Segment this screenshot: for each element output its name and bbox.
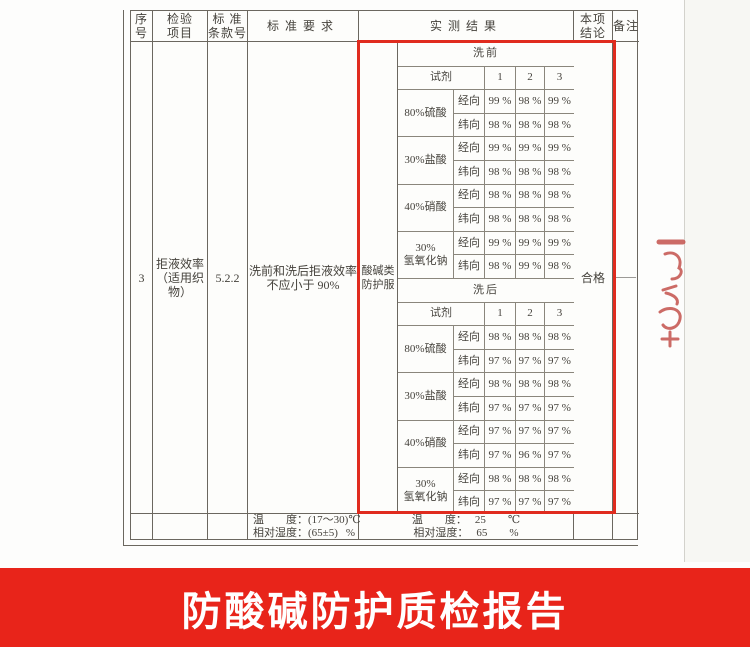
- direction-label: 经向: [453, 325, 484, 349]
- stamp-fragment-marks: [653, 238, 687, 350]
- requirement-line1: 洗前和洗后拒液效率: [249, 264, 357, 278]
- reagent-name: 30%盐酸: [398, 372, 453, 419]
- conclusion-value: 合格: [581, 271, 605, 285]
- col-header-clause-line1: 标 准: [212, 12, 242, 26]
- trial-number-header: 2: [515, 66, 544, 90]
- result-value: 99 %: [544, 231, 574, 255]
- result-value: 97 %: [544, 490, 574, 514]
- result-value: 97 %: [544, 420, 574, 444]
- col-header-remark: 备注: [613, 11, 639, 42]
- result-value: 98 %: [515, 372, 544, 396]
- trial-number-header: 3: [544, 66, 574, 90]
- col-header-item-line2: 项目: [167, 26, 193, 40]
- col-header-conclusion: 本项 结论: [574, 11, 613, 42]
- result-value: 97 %: [515, 420, 544, 444]
- reagent-name: 30%盐酸: [398, 136, 453, 183]
- col-header-seq: 序 号: [131, 11, 153, 42]
- result-value: 99 %: [484, 231, 515, 255]
- reagent-name: 40%硝酸: [398, 184, 453, 231]
- result-value: 98 %: [484, 467, 515, 491]
- result-value: 99 %: [484, 136, 515, 160]
- result-value: 97 %: [484, 443, 515, 467]
- result-value: 98 %: [544, 207, 574, 231]
- direction-label: 纬向: [453, 207, 484, 231]
- seq-value: 3: [139, 271, 145, 285]
- col-header-conclusion-line2: 结论: [580, 26, 606, 40]
- env-standard-temperature-value: (17～30)℃: [308, 514, 361, 526]
- result-value: 97 %: [515, 349, 544, 373]
- result-value: 97 %: [515, 396, 544, 420]
- result-value: 98 %: [544, 467, 574, 491]
- env-actual-cell: 温 度：25℃ 相对湿度：65%: [359, 514, 574, 540]
- col-header-seq-line1: 序: [135, 12, 148, 26]
- col-header-conclusion-line1: 本项: [580, 12, 606, 26]
- item-line2: （适用织物）: [153, 271, 207, 299]
- direction-label: 经向: [453, 136, 484, 160]
- trial-number-header: 2: [515, 302, 544, 326]
- remark-cell: ——: [613, 42, 639, 514]
- trial-number-header: 1: [484, 66, 515, 90]
- result-value: 97 %: [484, 420, 515, 444]
- env-actual-temperature-value: 25: [475, 514, 486, 527]
- col-header-result: 实测结果: [359, 11, 574, 42]
- reagent-column-header: 试剂: [398, 302, 484, 326]
- col-header-clause-line2: 条款号: [208, 26, 247, 40]
- reagent-name: 40%硝酸: [398, 420, 453, 467]
- direction-label: 纬向: [453, 349, 484, 373]
- env-empty-5: [613, 514, 639, 540]
- env-actual-humidity-value: 65: [476, 527, 487, 540]
- result-value: 97 %: [544, 443, 574, 467]
- result-value: 98 %: [515, 113, 544, 137]
- requirement-line2: 不应小于 90%: [267, 278, 340, 292]
- banner-title-text: 防酸碱防护质检报告: [182, 579, 569, 637]
- result-value: 99 %: [515, 254, 544, 278]
- direction-label: 经向: [453, 372, 484, 396]
- report-page: 序 号 检验 项目 标 准 条款号 标准要求 实测结果 本项 结论 备注 3 拒…: [0, 0, 750, 647]
- item-cell: 拒液效率 （适用织物）: [153, 42, 208, 514]
- reagent-name: 80%硫酸: [398, 325, 453, 372]
- direction-label: 纬向: [453, 490, 484, 514]
- result-value: 98 %: [544, 160, 574, 184]
- reagent-name: 80%硫酸: [398, 89, 453, 136]
- result-value: 98 %: [484, 113, 515, 137]
- item-line1: 拒液效率: [156, 257, 204, 271]
- result-value: 98 %: [544, 325, 574, 349]
- result-value: 98 %: [515, 467, 544, 491]
- remark-value: ——: [616, 271, 636, 285]
- result-value: 98 %: [515, 160, 544, 184]
- result-value: 98 %: [484, 254, 515, 278]
- result-value: 98 %: [515, 89, 544, 113]
- title-banner: 防酸碱防护质检报告: [0, 568, 750, 647]
- result-value: 97 %: [544, 396, 574, 420]
- results-phase-header: 洗后: [398, 278, 574, 302]
- env-standard-humidity-unit: %: [346, 527, 355, 540]
- result-value: 99 %: [544, 136, 574, 160]
- result-value: 97 %: [544, 349, 574, 373]
- col-header-result-label: 实测结果: [430, 19, 502, 33]
- category-line2: 防护服: [362, 278, 395, 292]
- result-value: 98 %: [544, 254, 574, 278]
- env-empty-4: [574, 514, 613, 540]
- col-header-requirement-label: 标准要求: [267, 19, 339, 33]
- direction-label: 纬向: [453, 113, 484, 137]
- reagent-column-header: 试剂: [398, 66, 484, 90]
- direction-label: 经向: [453, 184, 484, 208]
- clause-value: 5.2.2: [216, 271, 240, 285]
- col-header-seq-line2: 号: [135, 26, 148, 40]
- col-header-requirement: 标准要求: [248, 11, 359, 42]
- result-value: 98 %: [515, 325, 544, 349]
- env-actual-humidity-label: 相对湿度：: [413, 527, 468, 539]
- conclusion-cell: 合格: [574, 42, 613, 514]
- env-standard-humidity-value: (65±5): [308, 527, 338, 539]
- env-actual-temperature-label: 温 度：: [412, 514, 467, 526]
- direction-label: 经向: [453, 89, 484, 113]
- category-cell: 酸碱类 防护服: [359, 42, 398, 514]
- result-value: 98 %: [484, 325, 515, 349]
- result-value: 98 %: [484, 160, 515, 184]
- col-header-clause: 标 准 条款号: [208, 11, 248, 42]
- result-value: 99 %: [484, 89, 515, 113]
- env-standard-temperature-label: 温 度：: [253, 514, 308, 526]
- direction-label: 经向: [453, 467, 484, 491]
- seq-cell: 3: [131, 42, 153, 514]
- result-value: 98 %: [544, 372, 574, 396]
- scan-edge-strip: [684, 0, 750, 562]
- reagent-name: 30% 氢氧化钠: [398, 231, 453, 278]
- direction-label: 经向: [453, 231, 484, 255]
- results-grid: 洗前试剂12380%硫酸经向99 %98 %99 %纬向98 %98 %98 %…: [398, 42, 574, 514]
- direction-label: 纬向: [453, 396, 484, 420]
- result-value: 97 %: [515, 490, 544, 514]
- direction-label: 经向: [453, 420, 484, 444]
- col-header-item: 检验 项目: [153, 11, 208, 42]
- env-actual-humidity-unit: %: [509, 527, 518, 540]
- table-outer-double-line-left: [123, 10, 124, 545]
- report-table: 序 号 检验 项目 标 准 条款号 标准要求 实测结果 本项 结论 备注 3 拒…: [130, 10, 638, 540]
- result-value: 96 %: [515, 443, 544, 467]
- result-value: 98 %: [544, 113, 574, 137]
- env-empty-1: [131, 514, 153, 540]
- trial-number-header: 3: [544, 302, 574, 326]
- result-value: 99 %: [515, 136, 544, 160]
- result-value: 98 %: [484, 184, 515, 208]
- results-phase-header: 洗前: [398, 42, 574, 66]
- clause-cell: 5.2.2: [208, 42, 248, 514]
- env-empty-2: [153, 514, 208, 540]
- env-standard-humidity: 相对湿度：(65±5)%: [253, 527, 355, 540]
- trial-number-header: 1: [484, 302, 515, 326]
- result-value: 97 %: [484, 349, 515, 373]
- env-actual-humidity: 相对湿度：65%: [413, 527, 518, 540]
- env-actual-temperature: 温 度：25℃: [412, 514, 520, 527]
- env-standard-humidity-label: 相对湿度：: [253, 527, 308, 539]
- result-value: 98 %: [515, 207, 544, 231]
- result-value: 98 %: [515, 184, 544, 208]
- table-outer-double-line-bottom: [123, 545, 638, 546]
- col-header-remark-label: 备注: [613, 19, 639, 33]
- env-actual-temperature-unit: ℃: [508, 514, 520, 527]
- result-value: 98 %: [484, 372, 515, 396]
- direction-label: 纬向: [453, 160, 484, 184]
- direction-label: 纬向: [453, 254, 484, 278]
- env-empty-3: [208, 514, 248, 540]
- requirement-cell: 洗前和洗后拒液效率 不应小于 90%: [248, 42, 359, 514]
- env-standard-temperature: 温 度：(17～30)℃: [253, 514, 361, 527]
- result-value: 98 %: [484, 207, 515, 231]
- result-value: 97 %: [484, 396, 515, 420]
- result-value: 99 %: [515, 231, 544, 255]
- col-header-item-line1: 检验: [167, 12, 193, 26]
- result-value: 97 %: [484, 490, 515, 514]
- direction-label: 纬向: [453, 443, 484, 467]
- result-value: 99 %: [544, 89, 574, 113]
- env-standard-cell: 温 度：(17～30)℃ 相对湿度：(65±5)%: [248, 514, 359, 540]
- reagent-name: 30% 氢氧化钠: [398, 467, 453, 514]
- result-value: 98 %: [544, 184, 574, 208]
- category-line1: 酸碱类: [362, 264, 395, 278]
